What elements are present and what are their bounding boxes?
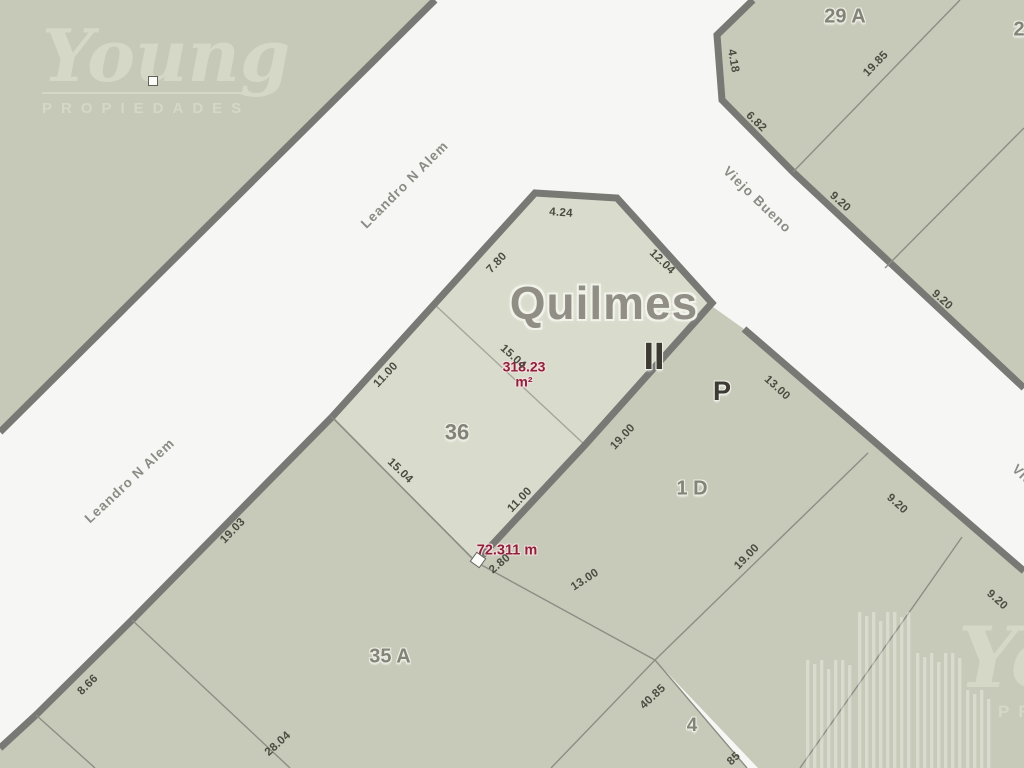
cadastral-map-screenshot: { "watermark": { "brand": "Young", "subt… xyxy=(0,0,1024,768)
city-title: Quilmes xyxy=(510,279,699,327)
parcel-label: 36 xyxy=(445,420,469,443)
parcel-label: 35 A xyxy=(369,647,411,668)
measurement-label: 4.24 xyxy=(549,206,573,220)
parcel-label: II xyxy=(643,338,664,378)
map-canvas: Young PROPIEDADES Young PROPIEDADES Quil… xyxy=(0,0,1024,768)
brand-subtitle: PROPIEDADES xyxy=(42,92,250,117)
logo-square-marker xyxy=(148,76,158,86)
brand-watermark-corner: Young PROPIEDADES xyxy=(958,618,1024,722)
parcel-label: 4 xyxy=(687,716,698,736)
parcel-label: P xyxy=(713,377,731,405)
brand-name: Young xyxy=(958,618,1024,698)
parcel-label: 29 A xyxy=(824,7,866,28)
parcel-label: 1 D xyxy=(676,479,707,500)
parcel-label: 2 xyxy=(1013,20,1024,41)
brand-name: Young xyxy=(42,22,290,90)
brand-watermark: Young PROPIEDADES xyxy=(42,22,290,118)
